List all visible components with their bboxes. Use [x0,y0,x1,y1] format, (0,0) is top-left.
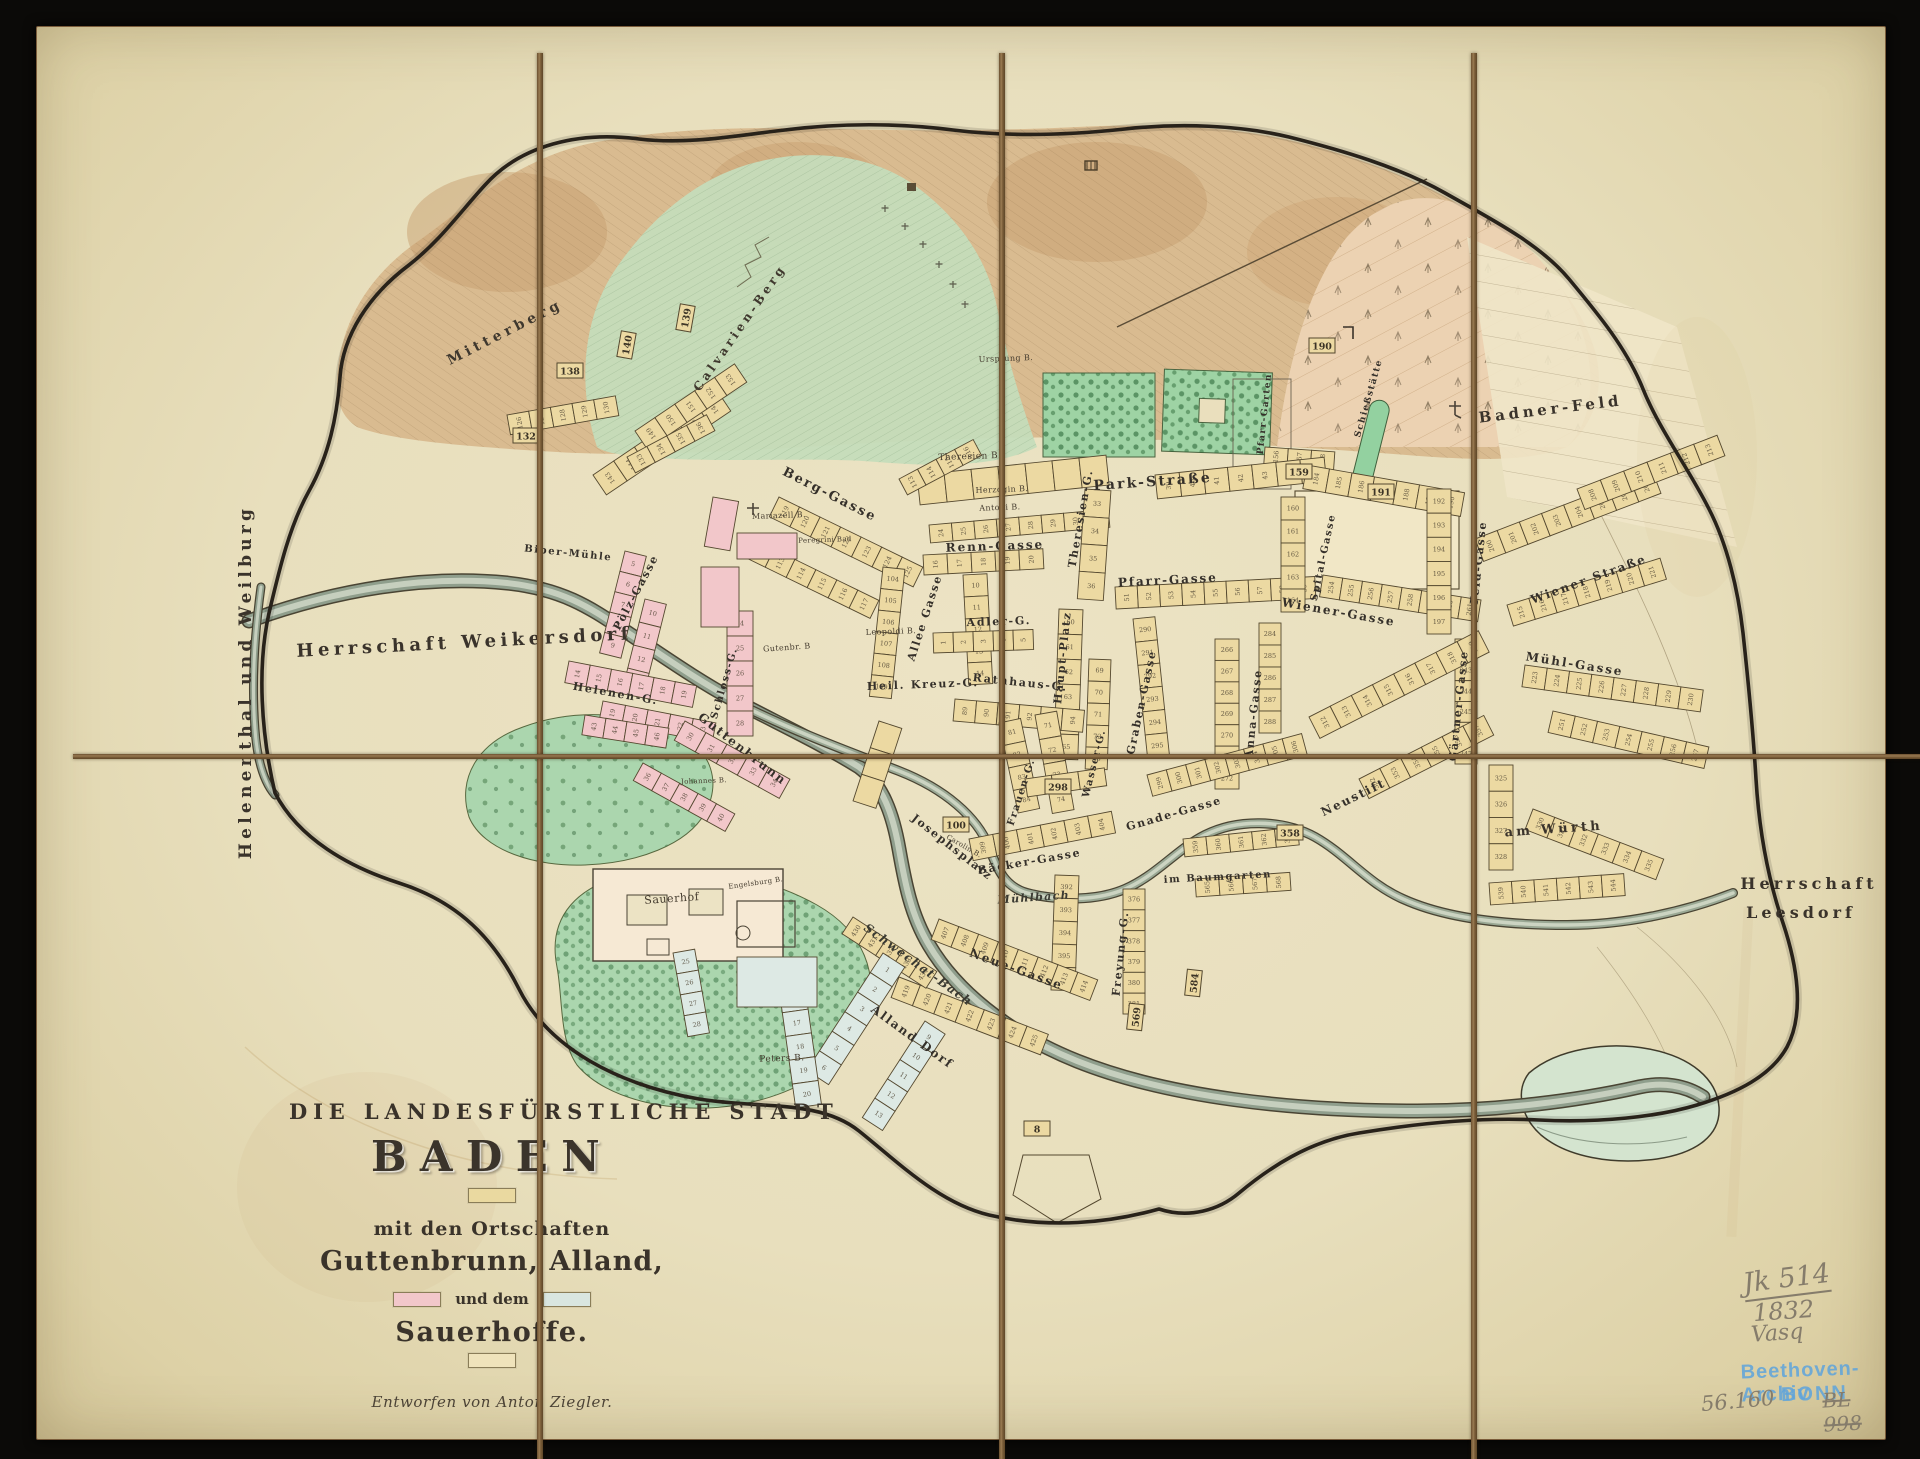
svg-text:286: 286 [1264,674,1276,682]
svg-text:285: 285 [1264,652,1276,660]
svg-text:288: 288 [1264,718,1276,726]
svg-text:26: 26 [736,670,744,678]
svg-text:19: 19 [679,690,688,700]
svg-text:44: 44 [611,725,620,734]
svg-text:45: 45 [632,729,641,738]
map-label-bldg: Peters B. [759,1053,805,1065]
svg-text:539: 539 [1497,887,1506,900]
legend-swatch-guttenbrunn [393,1292,441,1307]
svg-text:17: 17 [637,681,646,691]
svg-text:194: 194 [1433,546,1445,554]
house-number: 132 [513,428,539,443]
house-number: 358 [1277,825,1303,840]
svg-text:53: 53 [1167,591,1175,600]
svg-text:10: 10 [971,581,980,589]
photo-backdrop: 1431441451461471481491501511521531191201… [0,0,1920,1459]
svg-text:15: 15 [594,673,603,683]
legend-swatch-baden [468,1188,516,1203]
svg-text:230: 230 [1686,693,1696,706]
svg-text:51: 51 [1123,593,1131,602]
svg-text:28: 28 [736,720,744,728]
svg-text:105: 105 [884,596,897,605]
map-villages: Guttenbrunn, Alland, [289,1246,695,1277]
map-subtitle: mit den Ortschaften [289,1218,695,1240]
svg-text:71: 71 [1043,721,1053,730]
svg-text:380: 380 [1128,979,1140,987]
svg-text:270: 270 [1221,732,1233,740]
svg-text:16: 16 [616,677,625,687]
svg-text:16: 16 [931,560,939,569]
map-label-street: Neustift [1319,776,1388,819]
svg-text:542: 542 [1564,882,1573,895]
map-label-street: Heil. Kreuz-G. [867,676,979,693]
svg-text:227: 227 [1619,683,1629,696]
map-label-bldg: Ursprung B. [979,353,1034,364]
svg-text:569: 569 [1130,1006,1143,1027]
svg-text:71: 71 [1094,710,1103,718]
svg-text:52: 52 [1145,592,1153,601]
svg-text:540: 540 [1519,885,1528,898]
svg-text:100: 100 [946,821,966,832]
house-number: 100 [943,817,969,832]
svg-text:393: 393 [1059,906,1072,914]
svg-text:94: 94 [1069,716,1078,725]
svg-text:295: 295 [1151,741,1164,750]
map-label-region: Leesdorf [1746,903,1856,922]
svg-text:163: 163 [1287,574,1299,582]
svg-text:541: 541 [1542,884,1551,897]
svg-text:376: 376 [1128,896,1140,904]
map-label-bldg: Theresien B. [938,451,1001,463]
legend-swatch-sauerhof [468,1353,516,1368]
svg-text:267: 267 [1221,667,1233,675]
map-label-region: Herrschaft [1740,874,1877,893]
svg-text:361: 361 [1237,835,1246,848]
svg-text:568: 568 [1274,876,1283,889]
svg-text:544: 544 [1609,879,1618,892]
svg-text:228: 228 [1641,686,1651,699]
svg-text:362: 362 [1260,833,1269,846]
map-label-street: Gnade-Gasse [1125,794,1224,834]
svg-text:138: 138 [560,367,580,378]
house-row: 251252253254255256257 [1548,711,1709,768]
svg-text:24: 24 [937,528,946,537]
svg-text:8: 8 [1034,1125,1041,1136]
svg-text:27: 27 [688,999,698,1008]
svg-text:106: 106 [882,618,895,627]
svg-text:54: 54 [1189,590,1197,599]
annotation-crossed-out: BL 998 [1822,1385,1886,1436]
svg-text:104: 104 [886,574,899,583]
svg-text:266: 266 [1221,646,1233,654]
svg-text:162: 162 [1287,551,1299,559]
svg-text:3: 3 [979,639,987,643]
svg-text:108: 108 [877,661,890,670]
house-number: 191 [1368,484,1394,499]
svg-text:226: 226 [1597,680,1607,693]
house-number: 138 [557,363,583,378]
svg-text:225: 225 [1575,677,1585,690]
svg-text:190: 190 [1312,342,1332,353]
svg-text:284: 284 [1264,630,1276,638]
svg-text:229: 229 [1664,690,1674,703]
svg-text:25: 25 [959,527,968,536]
svg-text:92: 92 [1025,712,1034,721]
map-title-baden: BADEN [289,1132,695,1181]
svg-text:160: 160 [1287,505,1299,513]
svg-text:70: 70 [1095,688,1104,696]
svg-text:56: 56 [1234,587,1242,596]
svg-text:294: 294 [1148,718,1161,727]
map-label-region: Helenenthal und Weilburg [236,505,256,859]
svg-text:21: 21 [653,717,662,727]
svg-text:35: 35 [1089,554,1098,563]
house-number: 298 [1045,779,1071,794]
svg-text:358: 358 [1280,829,1300,840]
svg-text:17: 17 [792,1019,801,1028]
house-row [704,497,738,551]
svg-text:28: 28 [1027,521,1036,530]
house-row: 539540541542543544 [1489,874,1625,905]
svg-text:223: 223 [1530,671,1540,684]
svg-text:161: 161 [1287,528,1299,536]
map-label-bldg: Leopoldi B. [866,626,917,637]
svg-text:18: 18 [796,1042,805,1051]
map-credit: Entworfen von Anton Ziegler. [289,1393,695,1411]
svg-text:27: 27 [736,695,744,703]
title-block: DIE LANDESFÜRSTLICHE STADT BADEN mit den… [289,1099,695,1411]
svg-text:27: 27 [1004,523,1013,532]
legend-swatch-alland [543,1292,591,1307]
svg-text:326: 326 [1495,801,1507,809]
svg-text:57: 57 [1256,586,1264,595]
svg-text:43: 43 [590,722,599,731]
svg-text:18: 18 [979,557,987,566]
map-label-region: Herrschaft Weikersdorf [296,623,634,662]
svg-text:193: 193 [1433,521,1445,529]
svg-text:159: 159 [1289,468,1309,479]
svg-text:20: 20 [630,713,639,723]
svg-text:55: 55 [1211,588,1219,597]
svg-text:268: 268 [1221,689,1233,697]
map-label-bldg: Gutenbr. B [763,641,811,653]
svg-text:43: 43 [1261,471,1270,480]
map-sauerhof: Sauerhoffe. [289,1317,695,1348]
map-title-line: DIE LANDESFÜRSTLICHE STADT [289,1099,695,1124]
svg-text:17: 17 [955,559,963,568]
house-number: 584 [1185,969,1203,996]
svg-text:298: 298 [1048,783,1068,794]
house-number: 159 [1286,464,1312,479]
svg-text:29: 29 [1049,519,1058,528]
svg-text:46: 46 [652,732,661,741]
village-pentagon [1013,1155,1101,1223]
svg-text:543: 543 [1587,880,1596,893]
svg-text:19: 19 [799,1066,808,1075]
svg-text:360: 360 [1214,838,1223,851]
annotation-note: Vasq [1750,1319,1804,1348]
svg-text:1: 1 [939,640,947,644]
svg-text:26: 26 [685,978,695,987]
svg-text:91: 91 [1004,710,1013,719]
svg-text:290: 290 [1139,625,1152,634]
svg-text:33: 33 [1093,500,1102,509]
svg-text:224: 224 [1552,674,1562,687]
svg-text:19: 19 [608,708,617,718]
svg-text:325: 325 [1495,774,1507,782]
house-row [737,533,797,559]
svg-text:2: 2 [959,640,967,644]
svg-text:81: 81 [1007,727,1017,737]
svg-text:287: 287 [1264,696,1276,704]
house-row: 325326327328 [1489,765,1513,870]
svg-text:195: 195 [1433,570,1445,578]
house-row: 12345 [933,630,1034,653]
svg-text:20: 20 [802,1090,811,1099]
svg-text:192: 192 [1433,497,1445,505]
svg-text:41: 41 [1212,476,1221,485]
map-label-bldg: Johannes B. [680,776,727,786]
svg-text:74: 74 [1056,795,1066,804]
house-row [701,567,739,627]
svg-text:197: 197 [1433,618,1445,626]
svg-text:379: 379 [1128,958,1140,966]
svg-text:394: 394 [1059,929,1072,937]
svg-text:26: 26 [982,525,991,534]
fold-line-horizontal [73,754,1920,759]
svg-text:20: 20 [1027,555,1035,564]
map-sheet: 1431441451461471481491501511521531191201… [36,26,1886,1440]
house-row: 1011121314 [963,574,993,685]
svg-text:196: 196 [1433,594,1445,602]
svg-text:107: 107 [879,639,892,648]
svg-text:132: 132 [516,432,536,443]
svg-text:395: 395 [1058,952,1071,960]
svg-text:34: 34 [1091,527,1100,536]
svg-text:378: 378 [1128,937,1140,945]
svg-text:359: 359 [1191,840,1200,853]
svg-text:5: 5 [1019,638,1027,642]
svg-text:269: 269 [1221,710,1233,718]
map-label-bldg: Mariazell B. [752,510,806,521]
svg-text:42: 42 [1237,473,1246,482]
house-number: 8 [1024,1121,1050,1136]
svg-text:90: 90 [982,708,991,717]
svg-text:328: 328 [1495,853,1507,861]
svg-text:36: 36 [1087,582,1096,591]
svg-text:25: 25 [681,957,691,966]
map-und-dem: und dem [455,1290,528,1308]
svg-text:584: 584 [1188,972,1201,993]
svg-text:191: 191 [1371,488,1391,499]
svg-text:156: 156 [1272,450,1281,463]
svg-text:11: 11 [972,603,981,611]
svg-text:89: 89 [961,706,970,715]
svg-text:14: 14 [573,669,582,679]
house-number: 569 [1127,1003,1145,1030]
house-row: 192193194195196197 [1427,489,1451,634]
svg-text:28: 28 [692,1020,702,1029]
house-row [737,957,817,1007]
house-number: 190 [1309,338,1335,353]
svg-text:69: 69 [1095,666,1104,674]
